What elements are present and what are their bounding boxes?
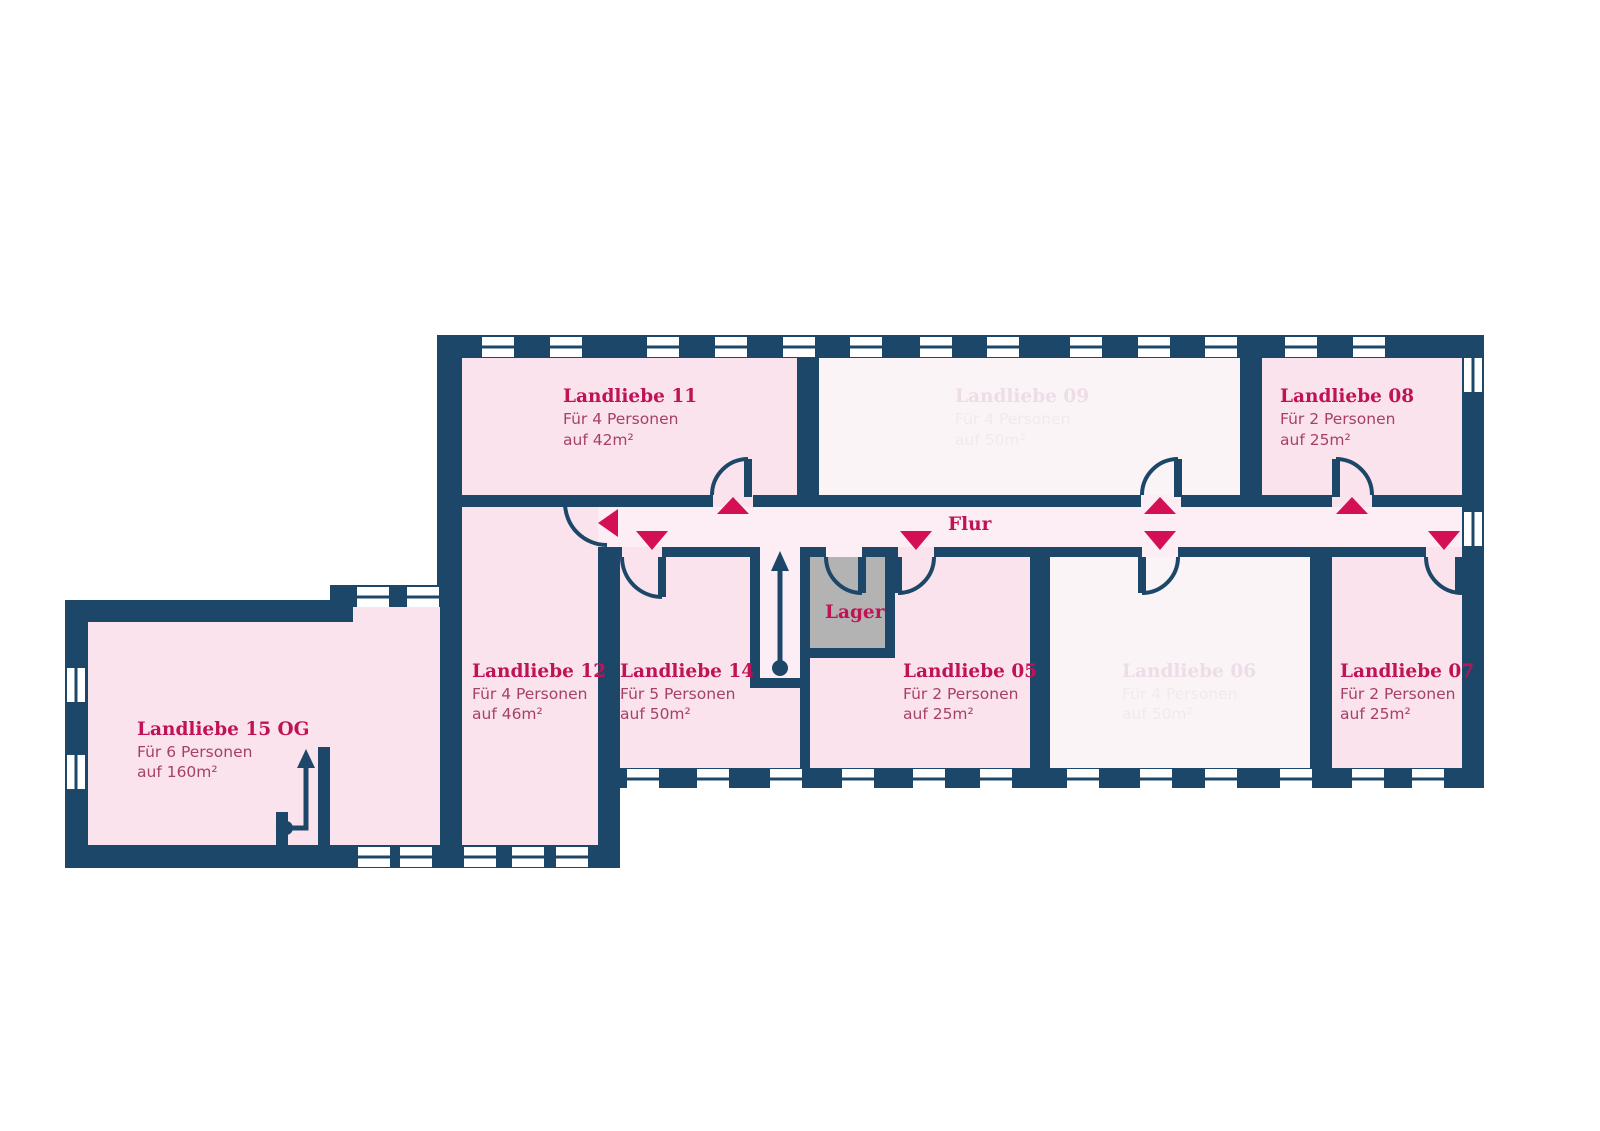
door-leaf	[1455, 557, 1463, 593]
stair-start-dot	[279, 821, 293, 835]
window	[1285, 337, 1317, 357]
doorway	[622, 547, 662, 557]
window	[1067, 769, 1099, 789]
window	[647, 337, 679, 357]
window	[407, 587, 439, 607]
window	[1070, 337, 1102, 357]
room-capacity: Für 5 Personen	[620, 685, 735, 703]
window	[1464, 512, 1482, 546]
room-capacity: Für 4 Personen	[563, 410, 678, 428]
room-capacity: Für 2 Personen	[1340, 685, 1455, 703]
room-capacity: Für 4 Personen	[955, 410, 1070, 428]
room-area: auf 50m²	[620, 705, 691, 723]
window	[1205, 337, 1237, 357]
window	[1352, 769, 1384, 789]
stair-wall	[318, 747, 330, 845]
room-area: auf 25m²	[1280, 431, 1351, 449]
floor-plan: Landliebe 11 Für 4 Personen auf 42m² Lan…	[0, 0, 1600, 1131]
door-leaf	[565, 498, 607, 506]
room-title: Landliebe 07	[1340, 661, 1474, 682]
window	[697, 769, 729, 789]
room-area: auf 50m²	[955, 431, 1026, 449]
window	[67, 755, 85, 789]
doorway	[826, 547, 862, 557]
room-title: Landliebe 06	[1122, 661, 1256, 682]
room-area: auf 50m²	[1122, 705, 1193, 723]
window	[358, 847, 390, 867]
room-area: auf 160m²	[137, 763, 218, 781]
window	[1205, 769, 1237, 789]
window	[783, 337, 815, 357]
window	[987, 337, 1019, 357]
window	[850, 337, 882, 357]
room-title: Landliebe 05	[903, 661, 1037, 682]
room-title: Landliebe 11	[563, 386, 697, 407]
window	[1412, 769, 1444, 789]
door-leaf	[1174, 459, 1182, 497]
room-title: Landliebe 15 OG	[137, 719, 309, 740]
room-area: auf 25m²	[1340, 705, 1411, 723]
room-capacity: Für 4 Personen	[1122, 685, 1237, 703]
room-capacity: Für 6 Personen	[137, 743, 252, 761]
window	[1464, 358, 1482, 392]
window	[715, 337, 747, 357]
window	[550, 337, 582, 357]
window	[1138, 337, 1170, 357]
window	[482, 337, 514, 357]
room-capacity: Für 2 Personen	[1280, 410, 1395, 428]
door-leaf	[1138, 557, 1146, 593]
window	[357, 587, 389, 607]
window	[1353, 337, 1385, 357]
door-leaf	[1332, 459, 1340, 497]
window	[400, 847, 432, 867]
window	[913, 769, 945, 789]
door-leaf	[658, 557, 666, 597]
window	[920, 337, 952, 357]
window	[1280, 769, 1312, 789]
door-leaf	[744, 459, 752, 497]
window	[842, 769, 874, 789]
room-title: Landliebe 09	[955, 386, 1089, 407]
room-capacity: Für 4 Personen	[472, 685, 587, 703]
room-title: Landliebe 14	[620, 661, 754, 682]
room-area: auf 25m²	[903, 705, 974, 723]
window	[512, 847, 544, 867]
window	[627, 769, 659, 789]
room-area: auf 46m²	[472, 705, 543, 723]
room-title: Landliebe 12	[472, 661, 606, 682]
room-area: auf 42m²	[563, 431, 634, 449]
window	[1140, 769, 1172, 789]
door-leaf	[894, 557, 902, 593]
room-title: Landliebe 08	[1280, 386, 1414, 407]
window	[464, 847, 496, 867]
window	[556, 847, 588, 867]
door-leaf	[858, 557, 866, 593]
floor-plan-page: Landliebe 11 Für 4 Personen auf 42m² Lan…	[0, 0, 1600, 1131]
storage-label: Lager	[825, 602, 885, 623]
window	[67, 668, 85, 702]
room-capacity: Für 2 Personen	[903, 685, 1018, 703]
stair-start-dot	[772, 660, 788, 676]
window	[770, 769, 802, 789]
window	[980, 769, 1012, 789]
corridor-label: Flur	[948, 514, 992, 535]
